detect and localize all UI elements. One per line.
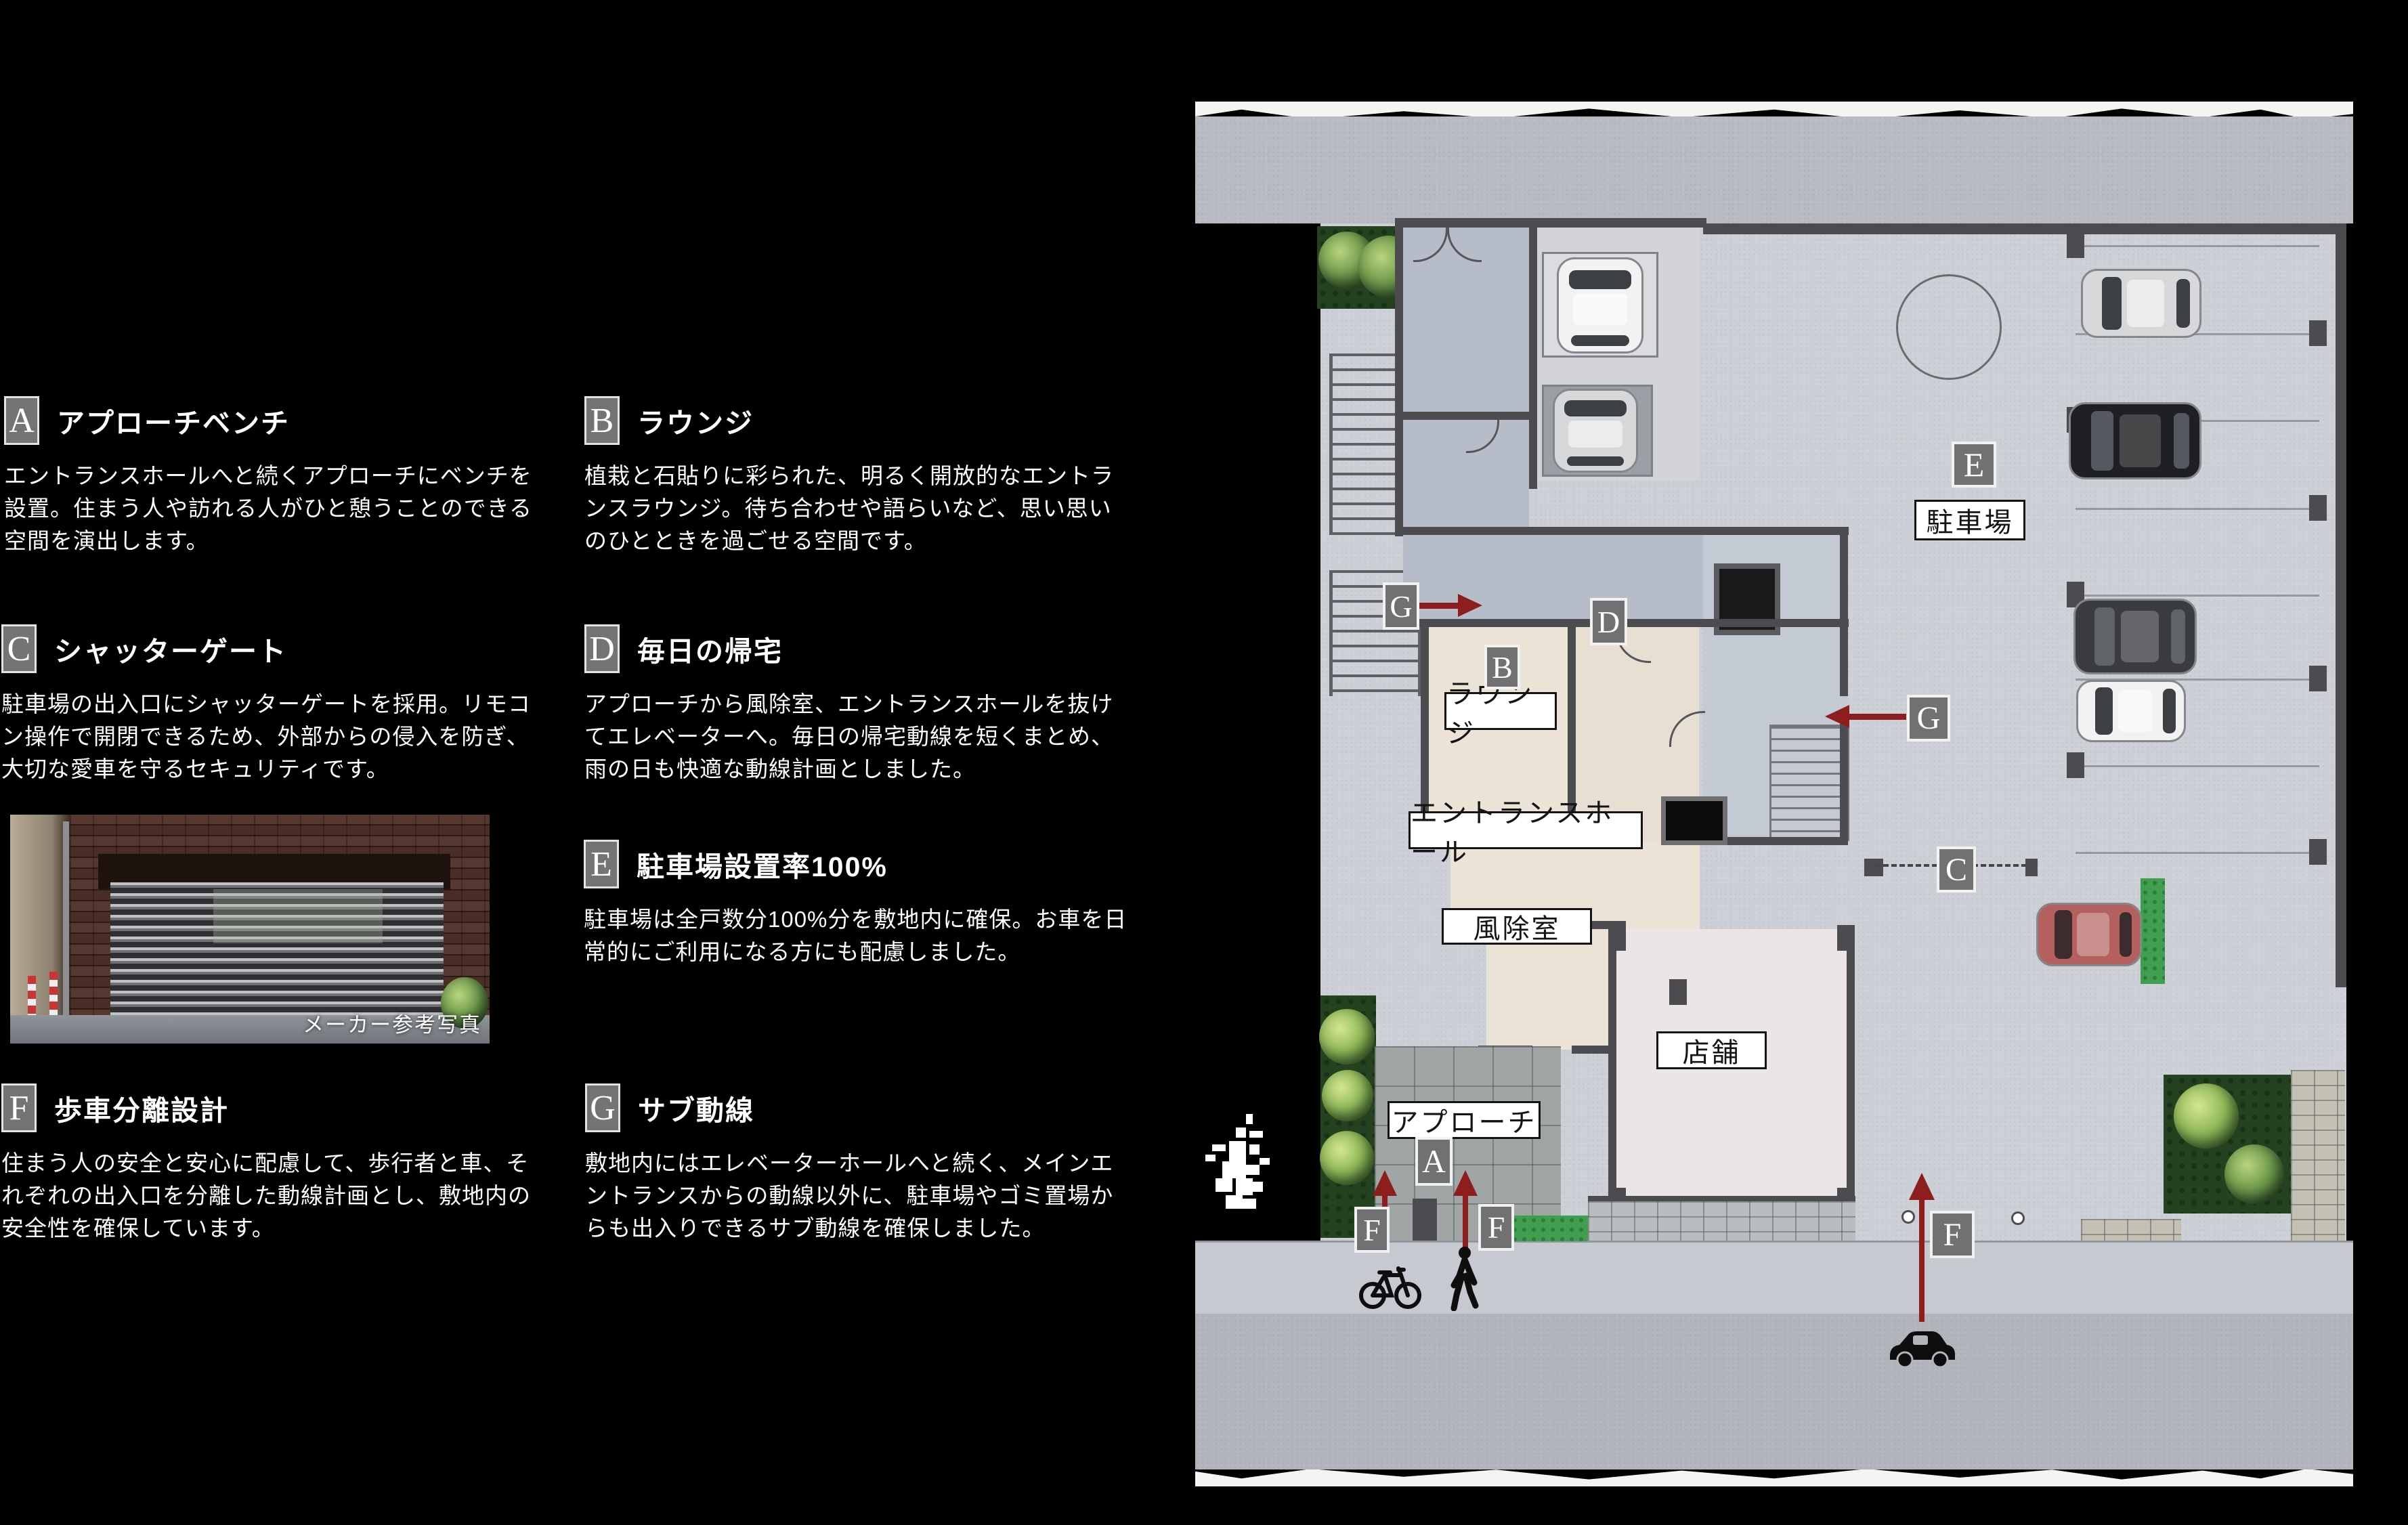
label-entrance-hall: エントランスホール <box>1409 811 1643 849</box>
label-parking: 駐車場 <box>1914 500 2025 540</box>
site-wall-north <box>1703 223 2337 234</box>
pillar <box>2067 752 2084 778</box>
gate-stub <box>1864 859 1883 876</box>
section-b-title: ラウンジ <box>637 400 754 441</box>
wall <box>1847 925 1855 1213</box>
entry-arrow-up-icon <box>1373 1170 1397 1196</box>
gate-pillar <box>1413 1199 1437 1241</box>
map-marker-e: E <box>1952 442 1996 488</box>
legend-section-f: F 歩車分離設計 住まう人の安全と安心に配慮して、歩行者と車、それぞれの出入口を… <box>1 1083 551 1245</box>
g1-arrow-shaft <box>1419 603 1458 609</box>
pillar <box>2309 666 2327 691</box>
stairs <box>1769 725 1849 841</box>
label-approach: アプローチ <box>1388 1101 1541 1139</box>
stone-paving <box>2291 1070 2345 1241</box>
section-d-title: 毎日の帰宅 <box>637 628 783 669</box>
section-a-description: エントランスホールへと続くアプローチにベンチを設置。住まう人や訪れる人がひと憩う… <box>4 460 554 557</box>
parked-car-silver <box>2081 269 2201 338</box>
torn-edge-bottom <box>1195 1469 2353 1486</box>
marker-badge-a: A <box>4 396 39 445</box>
pillar <box>1608 925 1626 951</box>
legend-section-d: D 毎日の帰宅 アプローチから風除室、エントランスホールを抜けてエレベーターへ。… <box>584 624 1134 786</box>
parked-car-red <box>2036 903 2142 966</box>
pedestrian-icon <box>1447 1246 1481 1311</box>
wall <box>1840 723 1848 845</box>
map-marker-f3: F <box>1930 1211 1975 1258</box>
marker-badge-f: F <box>1 1083 37 1132</box>
pillar <box>2309 495 2327 521</box>
car-icon <box>1886 1325 1959 1369</box>
pillar <box>2309 320 2327 346</box>
g2-arrow-shaft <box>1848 714 1906 720</box>
windbreak-room-floor <box>1486 929 1616 1050</box>
photo-caption: メーカー参考写真 <box>303 1008 481 1038</box>
section-g-description: 敷地内にはエレベーターホールへと続く、メインエントランスからの動線以外に、駐車場… <box>585 1147 1135 1245</box>
tree <box>2174 1083 2239 1148</box>
paving-band <box>1588 1201 1855 1241</box>
section-b-description: 植栽と石貼りに彩られた、明るく開放的なエントランスラウンジ。待ち合わせや語らいな… <box>584 460 1134 557</box>
hedge <box>2141 878 2165 984</box>
photo-neighbor-building <box>10 815 70 1018</box>
tree <box>1320 1131 1374 1185</box>
photo-drainpipe <box>63 821 69 1018</box>
street-top <box>1195 116 2353 223</box>
parked-car-white <box>1557 257 1643 353</box>
entry-arrow-shaft <box>1463 1195 1468 1250</box>
section-f-title: 歩車分離設計 <box>54 1088 229 1128</box>
map-marker-g2: G <box>1907 695 1950 742</box>
section-c-description: 駐車場の出入口にシャッターゲートを採用。リモコン操作で開閉できるため、外部からの… <box>1 688 551 786</box>
car-entry-arrow-up-icon <box>1909 1173 1935 1200</box>
photo-red-pole-2 <box>49 972 58 1018</box>
marker-badge-e: E <box>584 840 619 888</box>
map-marker-f1: F <box>1354 1207 1390 1253</box>
legend-section-c: C シャッターゲート 駐車場の出入口にシャッターゲートを採用。リモコン操作で開閉… <box>1 624 551 786</box>
site-wall-east <box>2336 223 2346 987</box>
car-entry-arrow-shaft <box>1919 1199 1925 1322</box>
pillar <box>2309 839 2327 865</box>
wall <box>1395 527 1849 535</box>
parked-car-white <box>2076 680 2186 742</box>
marker-badge-g: G <box>585 1083 620 1132</box>
site-plan-map: 駐車場 ラウンジ エントランスホール 風除室 店舗 アプローチ E B D G … <box>1195 102 2353 1486</box>
marker-badge-c: C <box>1 624 37 673</box>
legend-section-g: G サブ動線 敷地内にはエレベーターホールへと続く、メインエントランスからの動線… <box>585 1083 1135 1245</box>
parked-car-dark <box>2073 599 2197 674</box>
stall-line <box>2076 765 2319 767</box>
shop-floor <box>1616 929 1855 1213</box>
wall <box>1395 412 1529 420</box>
tree <box>2224 1144 2284 1204</box>
low-wall <box>1588 1196 1855 1201</box>
reference-photo: メーカー参考写真 <box>10 815 490 1044</box>
g2-arrow-left-icon <box>1825 705 1849 728</box>
wall <box>1529 218 1537 489</box>
pillar <box>2067 232 2084 258</box>
stall-line <box>2076 508 2319 510</box>
gate-stub <box>2025 859 2038 876</box>
street-bottom <box>1195 1314 2353 1469</box>
section-c-title: シャッターゲート <box>54 628 287 669</box>
map-marker-d: D <box>1590 598 1627 645</box>
section-e-title: 駐車場設置率100% <box>637 844 888 884</box>
section-d-description: アプローチから風除室、エントランスホールを抜けてエレベーターへ。毎日の帰宅動線を… <box>584 688 1134 786</box>
wall <box>1608 925 1616 1213</box>
parked-car-silver <box>1553 389 1638 473</box>
photo-light-through-shutter <box>213 889 383 943</box>
pillar <box>1837 925 1855 951</box>
map-marker-a: A <box>1415 1137 1453 1186</box>
map-marker-c: C <box>1937 846 1976 893</box>
marker-badge-d: D <box>584 624 620 673</box>
stone-paving <box>2081 1219 2181 1241</box>
light-court <box>1661 796 1727 845</box>
turning-circle <box>1896 274 2002 380</box>
tree <box>1319 1009 1375 1065</box>
label-windbreak-room: 風除室 <box>1442 908 1592 945</box>
section-f-description: 住まう人の安全と安心に配慮して、歩行者と車、それぞれの出入口を分離した動線計画と… <box>1 1147 551 1245</box>
wall <box>1840 527 1848 696</box>
stall-line <box>2076 595 2319 597</box>
tree <box>1322 1070 1373 1121</box>
section-a-title: アプローチベンチ <box>57 400 290 441</box>
bollard <box>1901 1210 1915 1224</box>
hedge <box>1510 1216 1588 1241</box>
stall-line <box>2076 852 2319 854</box>
section-g-title: サブ動線 <box>638 1088 754 1128</box>
legend-section-b: B ラウンジ 植栽と石貼りに彩られた、明るく開放的なエントランスラウンジ。待ち合… <box>584 396 1134 557</box>
wall <box>1395 218 1403 536</box>
legend-section-a: A アプローチベンチ エントランスホールへと続くアプローチにベンチを設置。住まう… <box>4 396 554 557</box>
legend-section-e: E 駐車場設置率100% 駐車場は全戸数分100%分を敷地内に確保。お車を日常的… <box>584 840 1134 968</box>
section-e-description: 駐車場は全戸数分100%分を敷地内に確保。お車を日常的にご利用になる方にも配慮し… <box>584 903 1134 968</box>
label-shop: 店舗 <box>1656 1031 1767 1069</box>
marker-badge-b: B <box>584 396 620 445</box>
bollard <box>2011 1211 2025 1225</box>
photo-red-pole-1 <box>28 976 36 1018</box>
pillar <box>1669 979 1687 1005</box>
wall <box>1395 218 1706 228</box>
map-marker-f2: F <box>1478 1204 1514 1251</box>
entry-arrow-up-icon <box>1453 1170 1478 1196</box>
map-marker-g1: G <box>1383 582 1419 630</box>
north-mark <box>1202 1114 1283 1229</box>
bicycle-icon <box>1359 1256 1421 1312</box>
g1-arrow-right-icon <box>1458 594 1482 617</box>
map-marker-b: B <box>1484 645 1520 689</box>
label-lounge: ラウンジ <box>1444 692 1557 730</box>
stall-line <box>2076 245 2319 247</box>
parked-car-black <box>2069 402 2201 479</box>
